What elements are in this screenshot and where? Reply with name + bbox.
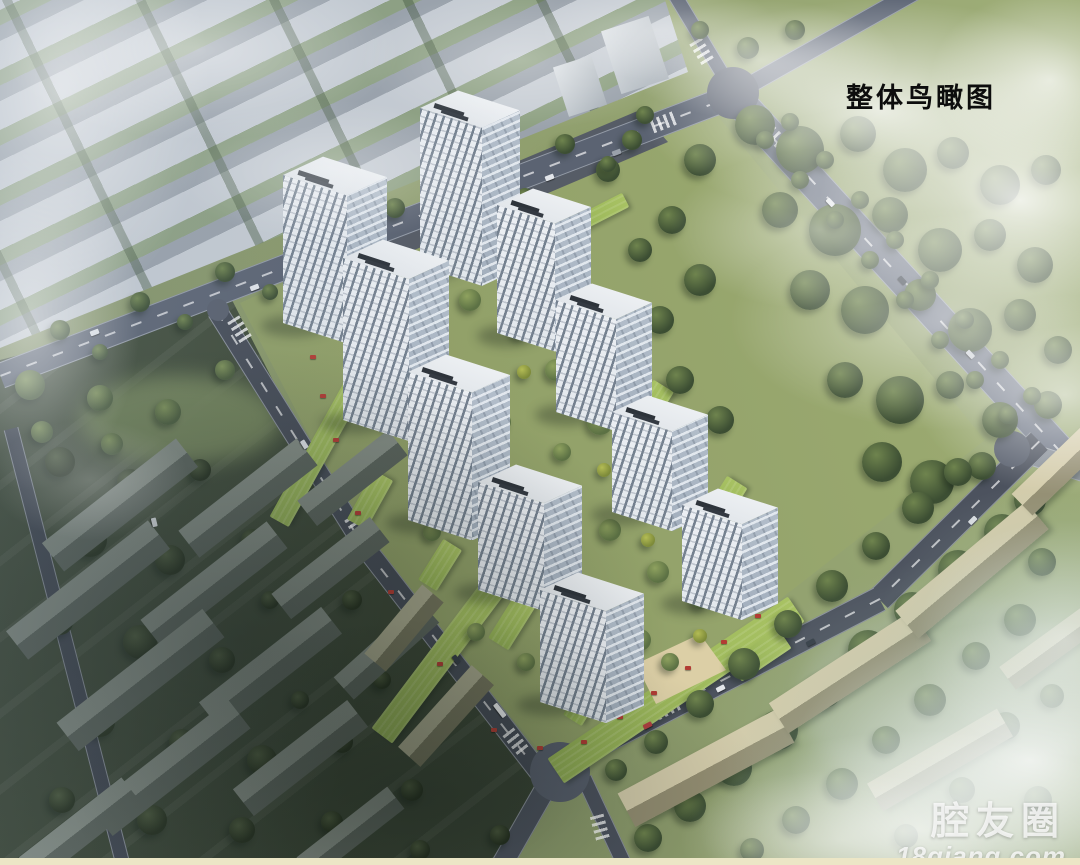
watermark: 腔友圈 18qiang.com bbox=[896, 790, 1066, 865]
fog-cloud bbox=[0, 420, 190, 540]
fog-cloud bbox=[915, 295, 1080, 495]
aerial-rendering: 整体鸟瞰图 腔友圈 18qiang.com bbox=[0, 0, 1080, 865]
fog-cloud bbox=[915, 520, 1080, 760]
watermark-brand: 腔友圈 bbox=[896, 790, 1066, 845]
fog-cloud bbox=[670, 150, 970, 310]
view-title: 整体鸟瞰图 bbox=[846, 76, 996, 115]
scene-painting bbox=[0, 0, 1080, 865]
bottom-border-strip bbox=[0, 858, 1080, 865]
